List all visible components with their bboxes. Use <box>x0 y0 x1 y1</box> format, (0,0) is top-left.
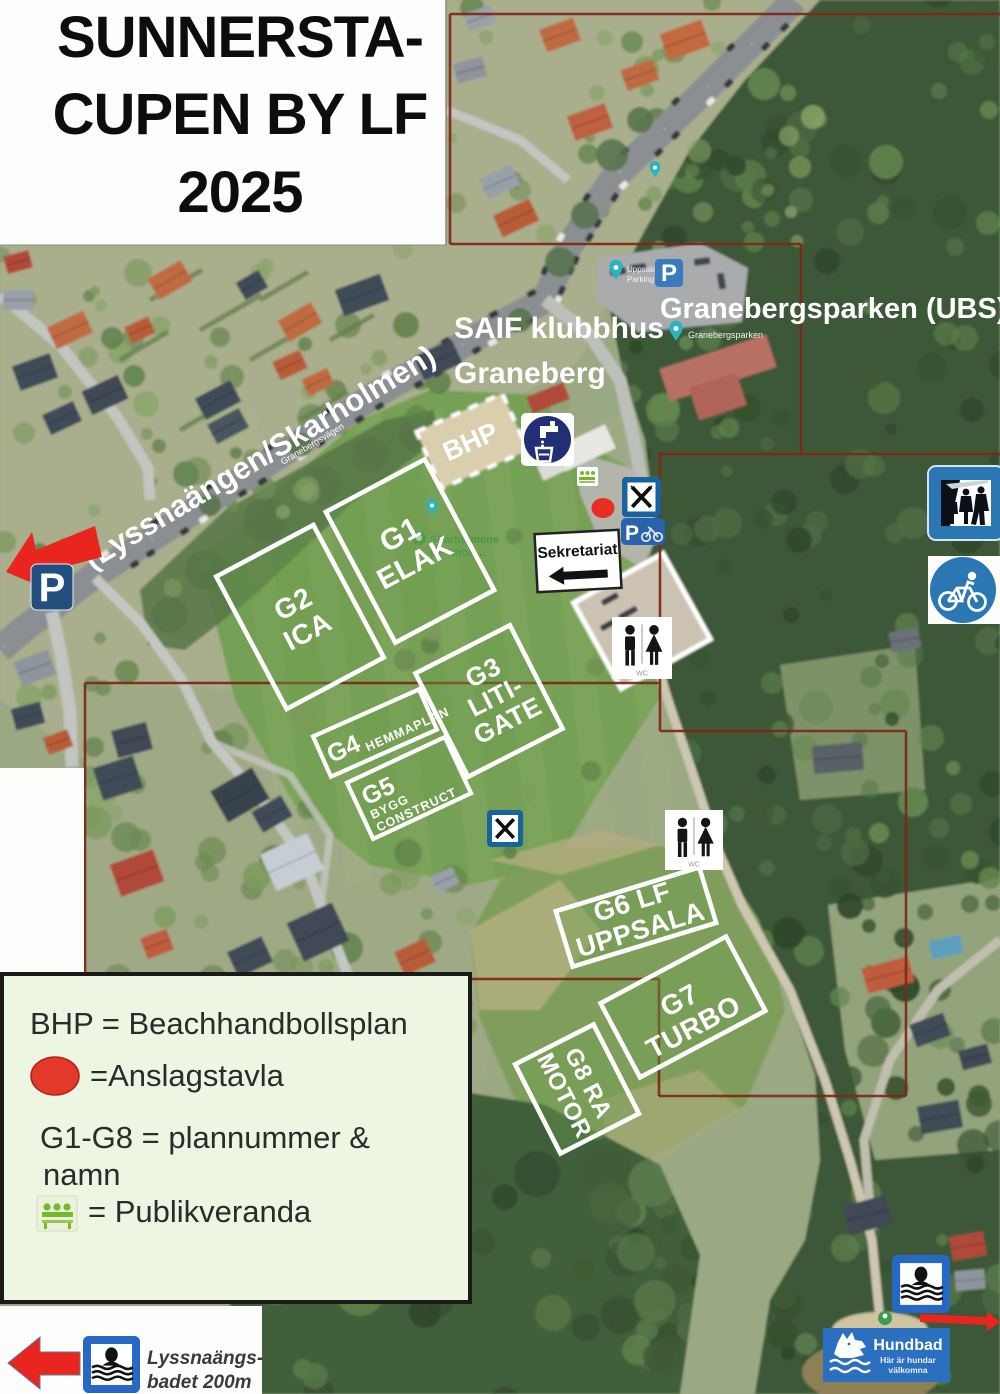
svg-text:=Anslagstavla: =Anslagstavla <box>90 1058 285 1093</box>
svg-text:P: P <box>625 522 639 545</box>
svg-text:Granebergsparken (UBS): Granebergsparken (UBS) <box>660 293 1000 325</box>
svg-text:Här är hundar: Här är hundar <box>880 1355 936 1365</box>
svg-text:SAIF klubbhus: SAIF klubbhus <box>454 312 664 345</box>
svg-text:SUNNERSTA-: SUNNERSTA- <box>57 5 423 70</box>
svg-text:välkomna: välkomna <box>888 1365 927 1375</box>
svg-text:P: P <box>39 566 66 610</box>
svg-text:WC: WC <box>688 861 700 868</box>
svg-text:badet 200m: badet 200m <box>147 1372 252 1393</box>
svg-text:Hundbad: Hundbad <box>873 1337 942 1354</box>
svg-text:G1-G8 = plannummer &: G1-G8 = plannummer & <box>40 1120 370 1155</box>
svg-text:WC: WC <box>636 669 648 677</box>
svg-text:Granebergsparken: Granebergsparken <box>688 330 763 340</box>
svg-text:CUPEN BY LF: CUPEN BY LF <box>53 82 428 147</box>
svg-text:2025: 2025 <box>177 160 302 225</box>
svg-text:BHP = Beachhandbollsplan: BHP = Beachhandbollsplan <box>30 1006 408 1041</box>
svg-text:namn: namn <box>43 1157 121 1192</box>
svg-text:P: P <box>661 260 677 287</box>
svg-text:Graneberg: Graneberg <box>454 357 606 390</box>
svg-text:= Publikveranda: = Publikveranda <box>88 1194 312 1229</box>
svg-text:Lyssnaängs-: Lyssnaängs- <box>147 1348 263 1369</box>
